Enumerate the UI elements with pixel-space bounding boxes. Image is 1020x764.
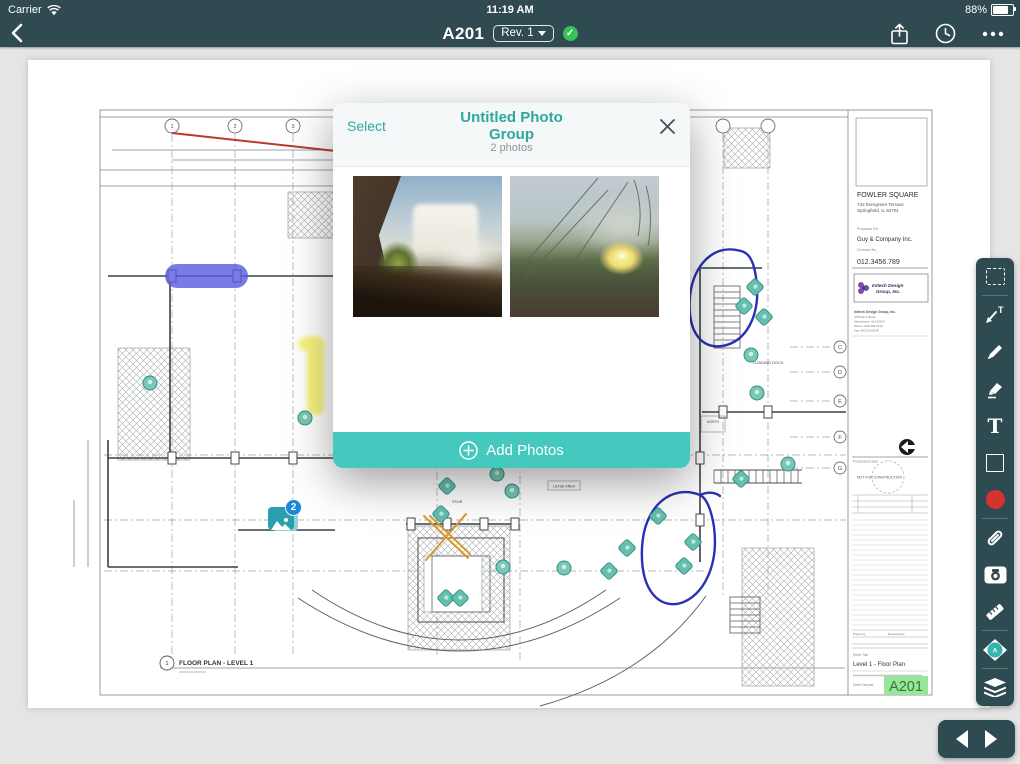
issue-pin-marker[interactable] — [781, 457, 796, 472]
battery-percent: 88% — [965, 4, 987, 16]
revision-label: Rev. 1 — [501, 27, 533, 39]
photo-pin-tool-selected[interactable]: A — [976, 631, 1014, 668]
issue-pin-marker[interactable] — [750, 386, 765, 401]
dialog-header: Select Untitled Photo Group 2 photos — [333, 103, 690, 167]
photo-group-dialog: Select Untitled Photo Group 2 photos — [333, 103, 690, 468]
link-icon — [985, 528, 1005, 548]
photo-pin-marker[interactable] — [745, 277, 765, 297]
issue-pin-marker[interactable] — [744, 348, 759, 363]
photo-pin-marker[interactable] — [648, 506, 668, 526]
camera-tool[interactable] — [976, 556, 1014, 593]
marquee-icon — [986, 268, 1005, 285]
photo-pin-marker[interactable] — [734, 296, 754, 316]
annotation-toolbar: T T — [976, 258, 1014, 706]
history-button[interactable] — [935, 23, 956, 44]
photo-count-badge: 2 — [285, 499, 302, 516]
measure-tool[interactable] — [976, 593, 1014, 630]
hyperlink-tool[interactable] — [976, 519, 1014, 556]
text-tool-icon: T — [988, 416, 1003, 436]
issue-pin-marker[interactable] — [496, 560, 511, 575]
callout-tool[interactable]: T — [976, 296, 1014, 333]
share-button[interactable] — [890, 23, 909, 45]
photo-pin-marker[interactable] — [731, 469, 751, 489]
highlighter-icon — [985, 379, 1005, 399]
previous-sheet-button[interactable] — [956, 730, 968, 748]
navigation-bar: A201 Rev. 1 ✓ — [0, 20, 1020, 47]
status-bar: Carrier 11:19 AM 88% — [0, 0, 1020, 20]
add-photos-button[interactable]: Add Photos — [333, 432, 690, 468]
revision-dropdown[interactable]: Rev. 1 — [493, 25, 553, 42]
photo-pin-marker[interactable] — [674, 556, 694, 576]
photo-group-marker[interactable]: 2 — [268, 504, 300, 534]
photo-thumbnail-flower[interactable] — [510, 176, 659, 317]
sheet-title: A201 — [442, 24, 484, 44]
photo-pin-icon: A — [982, 638, 1008, 662]
photo-pin-marker[interactable] — [431, 504, 451, 524]
next-sheet-button[interactable] — [985, 730, 997, 748]
highlighter-tool[interactable] — [976, 370, 1014, 407]
select-button[interactable]: Select — [347, 118, 437, 134]
issue-pin-marker[interactable] — [557, 561, 572, 576]
layers-icon — [984, 678, 1006, 697]
photo-pin-marker[interactable] — [683, 532, 703, 552]
photo-grid — [333, 167, 690, 317]
photo-pin-marker[interactable] — [617, 538, 637, 558]
photo-count-label: 2 photos — [347, 139, 676, 160]
issue-pin-marker[interactable] — [505, 484, 520, 499]
layers-tool[interactable] — [976, 669, 1014, 706]
issue-pin-marker[interactable] — [143, 376, 158, 391]
red-color-icon — [986, 490, 1005, 509]
callout-arrow-icon: T — [984, 305, 1006, 325]
add-photos-label: Add Photos — [486, 442, 564, 459]
pen-icon — [985, 342, 1005, 362]
sheet-pager — [938, 720, 1015, 758]
camera-icon — [984, 566, 1007, 584]
svg-text:T: T — [998, 305, 1004, 315]
marquee-select-tool[interactable] — [976, 258, 1014, 295]
close-button[interactable] — [586, 118, 676, 135]
plus-circle-icon — [459, 441, 478, 460]
clock-time: 11:19 AM — [0, 4, 1020, 16]
svg-text:A: A — [993, 647, 998, 654]
shape-tool[interactable] — [976, 444, 1014, 481]
ruler-icon — [984, 601, 1006, 623]
square-icon — [986, 454, 1004, 472]
photo-pin-marker[interactable] — [599, 561, 619, 581]
more-button[interactable] — [982, 31, 1004, 37]
close-icon — [659, 118, 676, 135]
text-tool[interactable]: T — [976, 407, 1014, 444]
pen-tool[interactable] — [976, 333, 1014, 370]
chevron-down-icon — [538, 31, 546, 36]
photo-pin-marker[interactable] — [450, 588, 470, 608]
issue-pin-marker[interactable] — [490, 467, 505, 482]
dialog-title: Untitled Photo Group — [437, 109, 586, 143]
issue-pin-marker[interactable] — [298, 411, 313, 426]
photo-pin-marker[interactable] — [437, 476, 457, 496]
color-swatch-tool[interactable] — [976, 481, 1014, 518]
battery-icon — [991, 4, 1014, 16]
photo-pin-marker[interactable] — [754, 307, 774, 327]
photo-thumbnail-waterfall[interactable] — [353, 176, 502, 317]
sync-status-icon: ✓ — [563, 26, 578, 41]
